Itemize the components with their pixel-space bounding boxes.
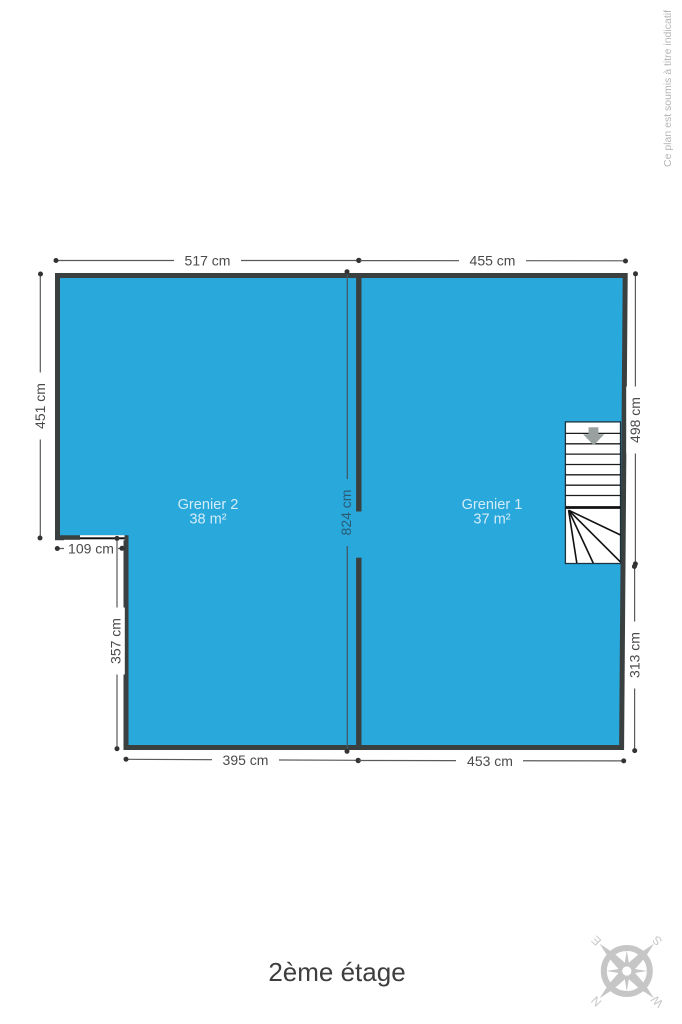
svg-text:453 cm: 453 cm bbox=[467, 753, 513, 769]
svg-text:395 cm: 395 cm bbox=[223, 752, 269, 768]
svg-text:517 cm: 517 cm bbox=[185, 252, 231, 268]
svg-text:451 cm: 451 cm bbox=[32, 383, 48, 429]
svg-text:109 cm: 109 cm bbox=[68, 540, 114, 556]
svg-text:357 cm: 357 cm bbox=[108, 618, 124, 664]
svg-text:37 m²: 37 m² bbox=[473, 511, 510, 527]
svg-text:Ce plan est soumis à titre ind: Ce plan est soumis à titre indicatif bbox=[662, 10, 674, 167]
svg-text:498 cm: 498 cm bbox=[627, 397, 643, 443]
svg-text:824 cm: 824 cm bbox=[338, 490, 354, 536]
svg-text:455 cm: 455 cm bbox=[470, 252, 516, 268]
svg-text:313 cm: 313 cm bbox=[626, 632, 642, 678]
svg-text:38 m²: 38 m² bbox=[189, 511, 226, 527]
svg-text:2ème étage: 2ème étage bbox=[268, 957, 405, 987]
